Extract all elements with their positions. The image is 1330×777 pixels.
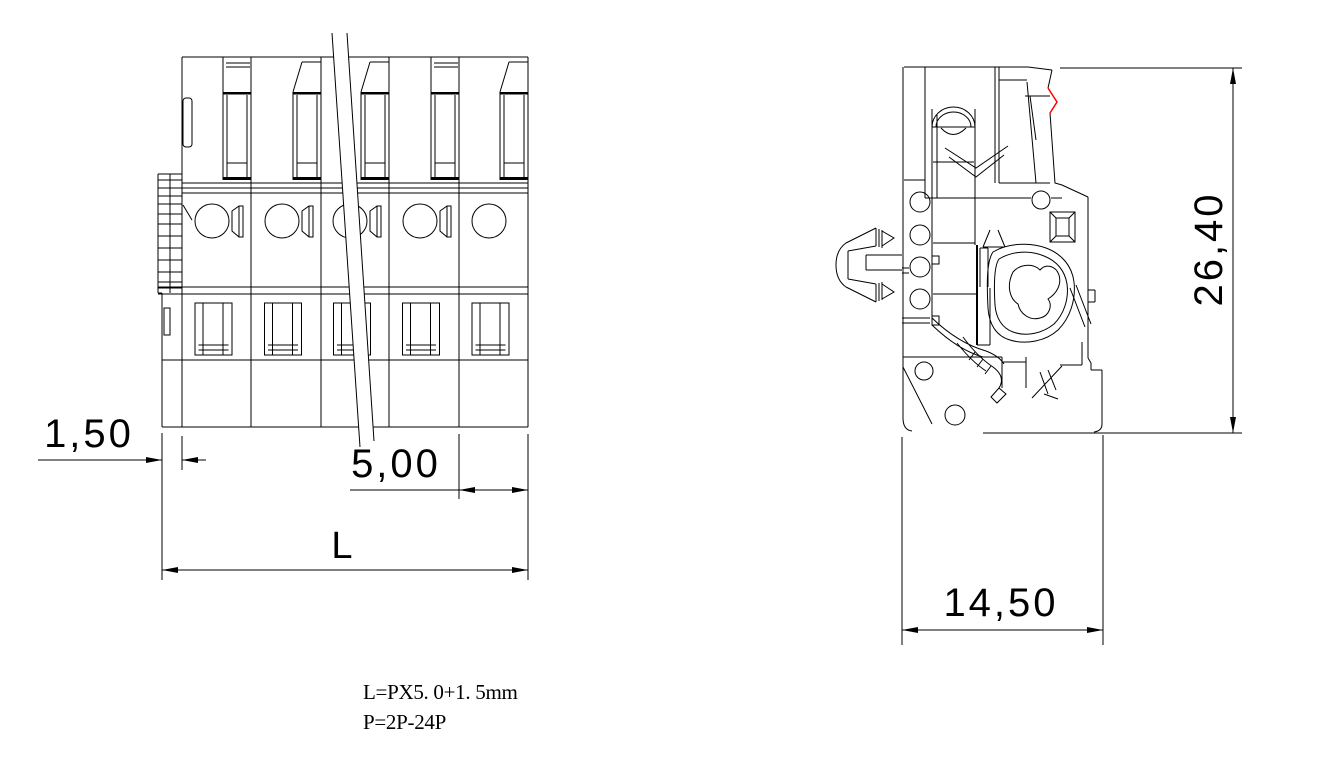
left-tab bbox=[183, 98, 192, 147]
terminal-block-technical-drawing: 1,50 5,00 L 14,50 26,40 bbox=[0, 0, 1330, 777]
actuator-slot-1 bbox=[223, 57, 251, 180]
dim-total-length-text: L bbox=[331, 525, 352, 567]
clamp-spring bbox=[987, 244, 1091, 342]
dim-height-text: 26,40 bbox=[1187, 191, 1231, 306]
break-lines bbox=[332, 33, 374, 447]
side-holes bbox=[910, 191, 1050, 425]
side-body-outline bbox=[903, 67, 1105, 433]
push-button-channel bbox=[932, 107, 990, 345]
note-length-formula: L=PX5. 0+1. 5mm bbox=[363, 680, 518, 704]
dim-depth: 14,50 bbox=[902, 581, 1103, 633]
actuator-slot-2 bbox=[293, 62, 321, 180]
square-window bbox=[1050, 212, 1075, 242]
left-ladder-profile bbox=[158, 174, 182, 293]
drawing-notes: L=PX5. 0+1. 5mm P=2P-24P bbox=[363, 680, 518, 734]
front-view bbox=[158, 33, 528, 447]
drawing-canvas: 1,50 5,00 L 14,50 26,40 bbox=[0, 0, 1330, 777]
pole-dividers bbox=[182, 57, 459, 427]
base-cavity-detail bbox=[903, 357, 1062, 424]
left-lower-tab bbox=[164, 308, 170, 335]
dim-pitch-text: 5,00 bbox=[351, 442, 441, 486]
highlight-notch bbox=[1048, 88, 1057, 113]
actuator-slot-5 bbox=[500, 62, 528, 180]
dim-pole-offset: 1,50 bbox=[38, 412, 206, 463]
wall-details bbox=[902, 256, 939, 325]
side-right-profile bbox=[1048, 70, 1102, 432]
dim-pole-offset-text: 1,50 bbox=[44, 412, 134, 456]
dim-pitch: 5,00 bbox=[350, 442, 528, 493]
side-view bbox=[836, 67, 1105, 433]
extension-lines bbox=[162, 68, 1242, 645]
note-pole-range: P=2P-24P bbox=[363, 710, 446, 734]
din-rail-latch bbox=[836, 228, 902, 302]
actuator-slot-4 bbox=[431, 57, 459, 180]
dim-depth-text: 14,50 bbox=[943, 581, 1058, 625]
dim-height: 26,40 bbox=[1187, 68, 1236, 433]
dimensions: 1,50 5,00 L 14,50 26,40 bbox=[38, 68, 1242, 645]
actuator-slot-3 bbox=[361, 62, 389, 180]
contact-detail bbox=[932, 318, 1006, 403]
dim-total-length: L bbox=[162, 525, 528, 573]
